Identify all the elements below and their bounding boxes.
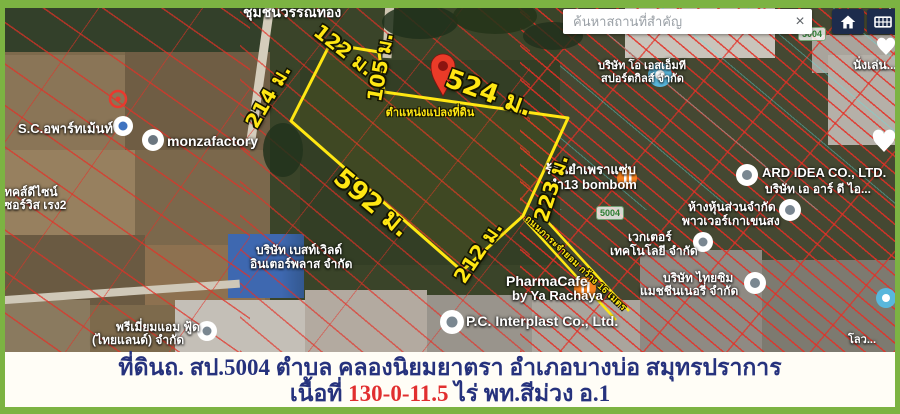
caption-area-prefix: เนื้อที่ <box>290 381 348 406</box>
land-plot-outline[interactable] <box>291 44 568 271</box>
poi-pin-apartment[interactable] <box>113 116 133 136</box>
poi-label-techdesign: เซอร์วิส เรง2 <box>0 196 66 215</box>
poi-label-nanglen: นั่งเล่น... <box>853 56 897 75</box>
screenshot-stage: 214 ม. 122 ม. 105 ม. 524 ม. 223 ม. 212 ม… <box>0 0 900 414</box>
poi-label-pharmacafe: by Ya Rachaya <box>512 288 603 303</box>
poi-label-ard-idea: บริษัท เอ อาร์ ดี ไอ... <box>765 180 871 199</box>
poi-label-bestworld: อินเตอร์พลาส จำกัด <box>250 255 352 274</box>
poi-pin-monzafactory[interactable] <box>142 129 164 151</box>
frame-top <box>0 0 900 8</box>
search-input[interactable] <box>571 11 788 33</box>
poi-label-vector-tech: เทคโนโลยี จำกัด <box>610 242 698 261</box>
frame-bottom <box>0 407 900 414</box>
poi-pin-premium-food[interactable] <box>197 321 217 341</box>
frame-left <box>0 0 5 414</box>
poi-label-osm-sport: สปอร์ตกิลส์ จำกัด <box>601 69 684 87</box>
poi-pin-bottom-right[interactable] <box>876 288 896 308</box>
poi-pin-ard-idea[interactable] <box>736 164 758 186</box>
close-icon[interactable]: × <box>788 9 812 34</box>
poi-label-premium-food: (ไทยแลนด์) จำกัด <box>92 331 184 350</box>
caption-line2: เนื้อที่ 130-0-11.5 ไร่ พท.สีม่วง อ.1 <box>5 381 895 407</box>
poi-pin-partnership[interactable] <box>779 199 801 221</box>
poi-label-thaisim: แมชชีนเนอรี่ จำกัด <box>640 282 738 301</box>
home-button[interactable] <box>832 9 864 34</box>
poi-label-pharmacafe: PharmaCafe <box>506 273 588 289</box>
frame-right <box>895 0 900 414</box>
poi-label-apartment: S.C.อพาร์ทเม้นท์ <box>18 118 113 139</box>
survey-ring-dot <box>116 97 121 102</box>
home-icon <box>839 14 857 30</box>
caption-area-value: 130-0-11.5 <box>348 381 448 406</box>
caption-panel: ที่ดินถ. สป.5004 ตำบล คลองนิยมยาตรา อำเภ… <box>5 352 895 407</box>
search-box[interactable]: × <box>563 9 812 34</box>
plot-position-label: ตำแหน่งแปลงที่ดิน <box>386 103 475 121</box>
poi-pin-interplast[interactable] <box>440 310 464 334</box>
poi-label-monzafactory: monzafactory <box>167 133 258 149</box>
caption-area-suffix: ไร่ พท.สีม่วง อ.1 <box>448 381 610 406</box>
route-badge: 5004 <box>596 206 624 220</box>
poi-label-interplast: P.C. Interplast Co., Ltd. <box>466 313 618 329</box>
caption-line1: ที่ดินถ. สป.5004 ตำบล คลองนิยมยาตรา อำเภ… <box>5 354 895 381</box>
poi-label-low: โลว... <box>848 330 876 348</box>
heart-marker-icon[interactable] <box>873 130 895 152</box>
poi-label-ard-idea: ARD IDEA CO., LTD. <box>762 165 886 180</box>
heart-icon[interactable] <box>877 38 895 55</box>
satellite-map[interactable]: 214 ม. 122 ม. 105 ม. 524 ม. 223 ม. 212 ม… <box>0 0 900 352</box>
poi-pin-thaisim[interactable] <box>744 272 766 294</box>
grid-icon <box>873 14 893 30</box>
poi-label-partnership: พาวเวอร์เกาเขนสง <box>682 212 780 231</box>
trees <box>263 123 303 177</box>
